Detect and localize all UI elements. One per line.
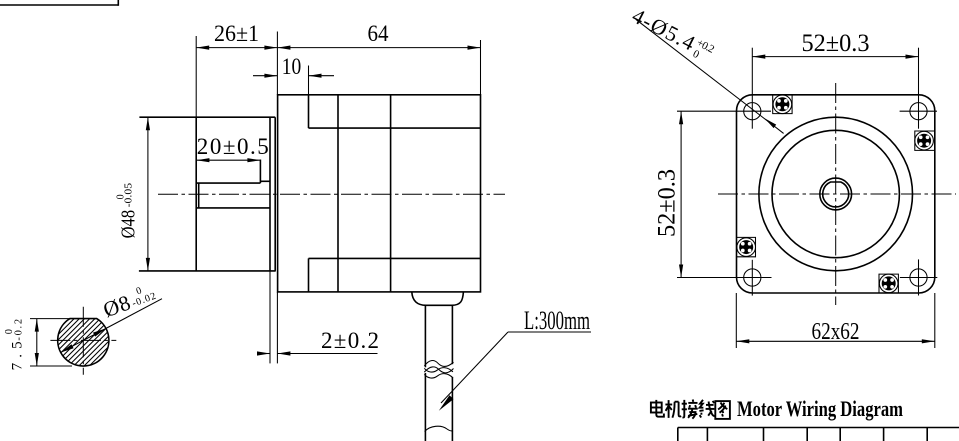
svg-text:7.5: 7.5: [10, 341, 26, 370]
svg-text:0: 0: [116, 194, 127, 199]
svg-text:Ø48: Ø48: [118, 210, 140, 239]
svg-text:62x62: 62x62: [812, 318, 860, 345]
svg-text:L:300mm: L:300mm: [524, 306, 590, 335]
svg-text:52±0.3: 52±0.3: [654, 169, 681, 237]
svg-text:52±0.3: 52±0.3: [802, 30, 870, 57]
svg-text:10: 10: [282, 54, 302, 79]
svg-text:64: 64: [368, 21, 389, 46]
svg-text:0: 0: [4, 329, 15, 334]
svg-text:Motor Wiring Diagram: Motor Wiring Diagram: [737, 396, 903, 421]
svg-text:20±0.5: 20±0.5: [197, 134, 269, 159]
svg-text:2±0.2: 2±0.2: [321, 328, 379, 353]
svg-text:26±1: 26±1: [214, 21, 259, 46]
